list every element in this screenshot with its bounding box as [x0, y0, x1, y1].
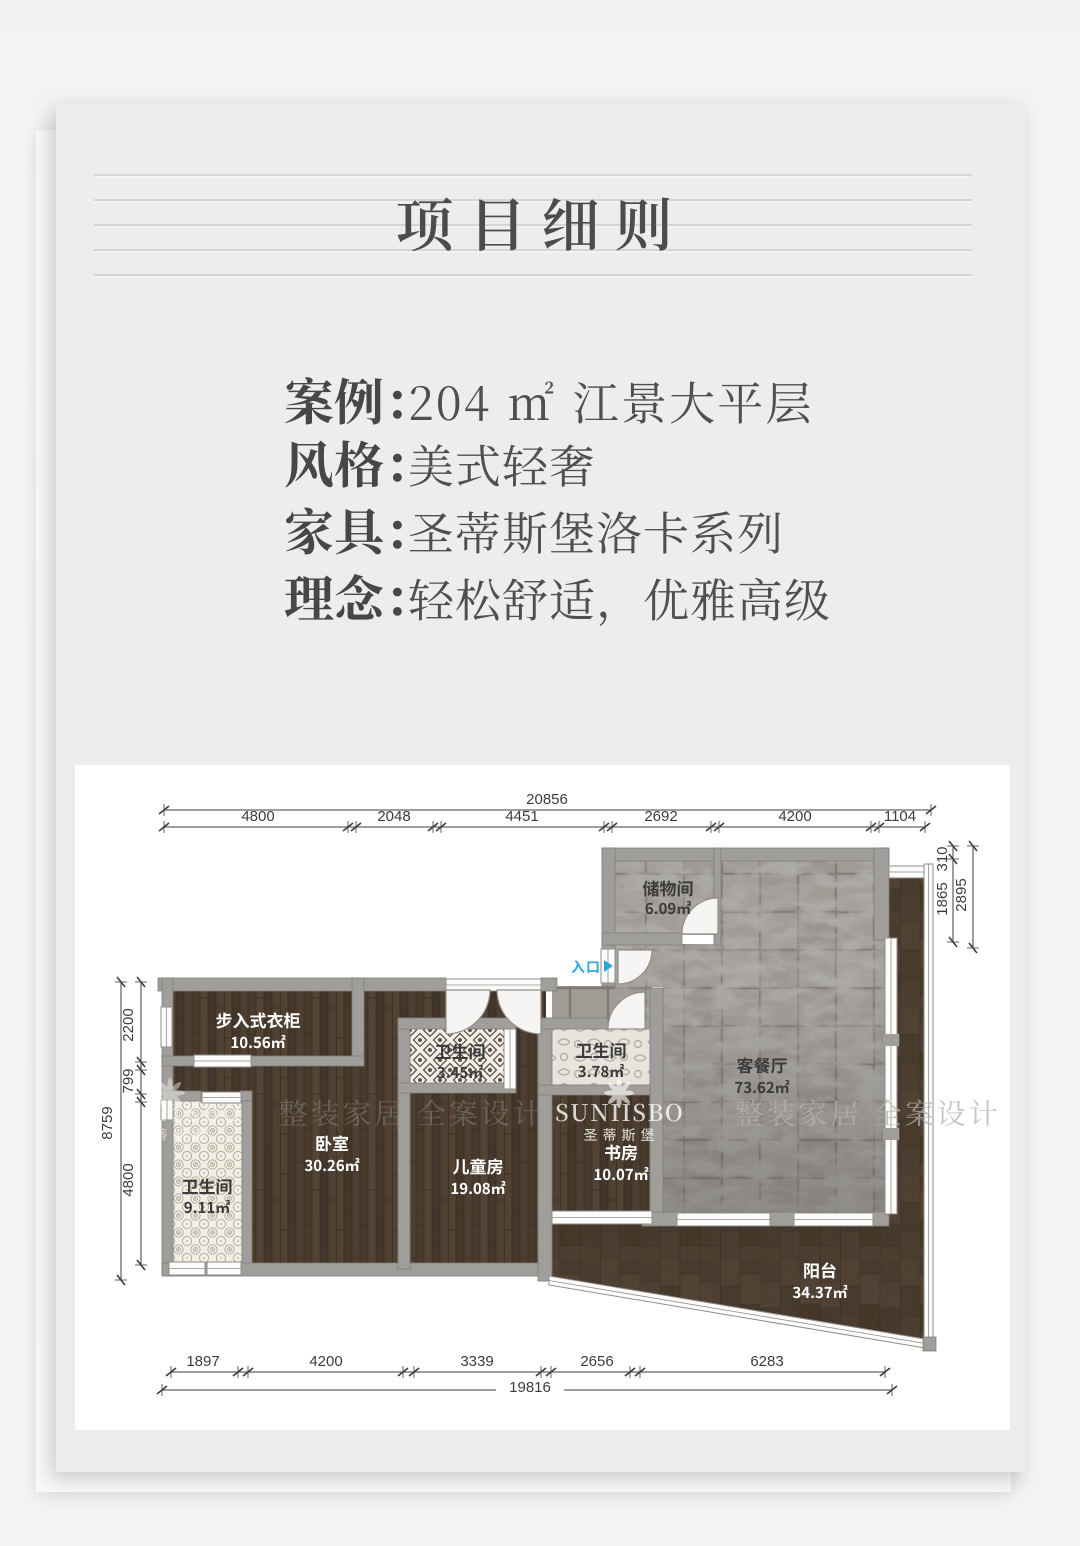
svg-text:2656: 2656 — [580, 1353, 613, 1370]
svg-text:1104: 1104 — [884, 808, 916, 825]
svg-text:4451: 4451 — [505, 808, 538, 825]
svg-text:1897: 1897 — [186, 1353, 219, 1370]
svg-text:19816: 19816 — [509, 1379, 551, 1396]
svg-text:2200: 2200 — [120, 1008, 137, 1041]
svg-text:4800: 4800 — [120, 1163, 137, 1196]
svg-text:6283: 6283 — [750, 1353, 783, 1370]
svg-text:2895: 2895 — [953, 878, 970, 911]
svg-text:2048: 2048 — [377, 808, 410, 825]
svg-text:3339: 3339 — [460, 1353, 493, 1370]
svg-text:8759: 8759 — [99, 1106, 116, 1139]
svg-text:2692: 2692 — [644, 808, 677, 825]
svg-text:1865: 1865 — [934, 882, 951, 915]
svg-text:4200: 4200 — [309, 1353, 342, 1370]
svg-text:4800: 4800 — [241, 808, 274, 825]
svg-text:20856: 20856 — [526, 791, 568, 808]
svg-text:4200: 4200 — [778, 808, 811, 825]
svg-text:310: 310 — [934, 846, 951, 871]
svg-text:799: 799 — [120, 1068, 137, 1093]
